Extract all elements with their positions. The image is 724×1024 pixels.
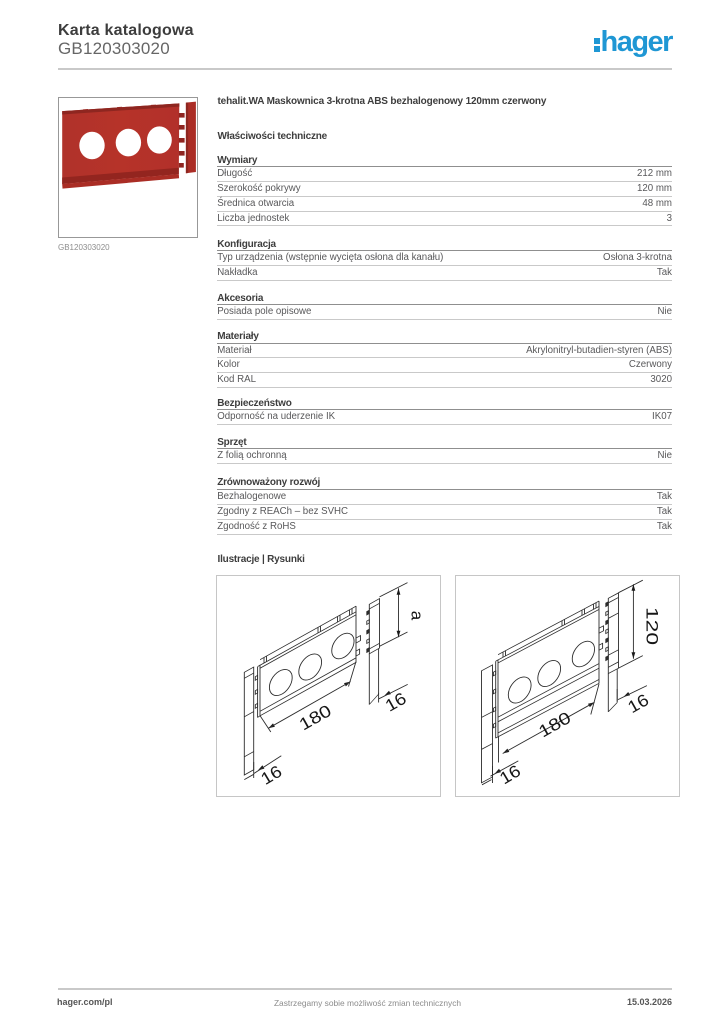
svg-text:180: 180	[296, 701, 335, 734]
svg-text:16: 16	[257, 762, 285, 789]
svg-text:16: 16	[382, 689, 410, 716]
svg-text:a: a	[408, 611, 427, 621]
svg-text:16: 16	[496, 761, 524, 788]
svg-text:180: 180	[535, 708, 574, 741]
svg-text:120: 120	[642, 607, 661, 645]
